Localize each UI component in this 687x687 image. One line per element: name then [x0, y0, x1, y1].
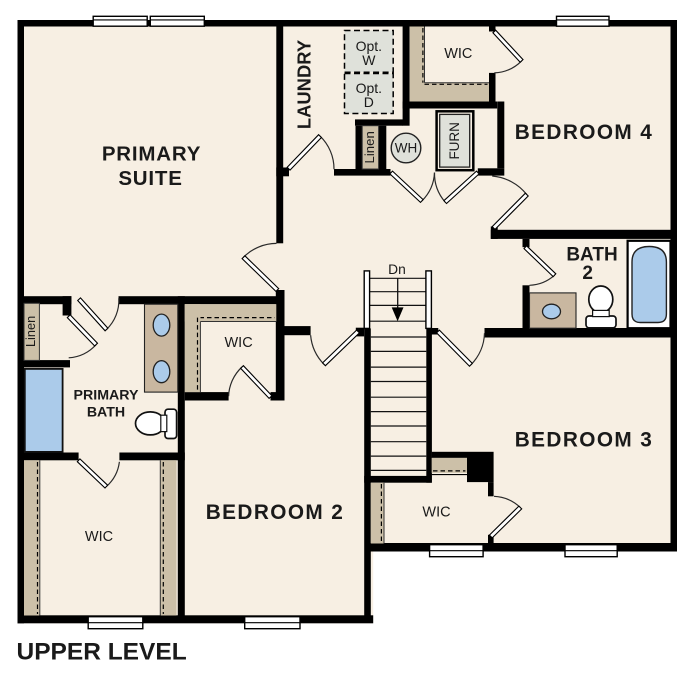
svg-text:PRIMARY: PRIMARY — [102, 142, 201, 165]
svg-text:D: D — [364, 94, 374, 110]
svg-text:BEDROOM 4: BEDROOM 4 — [515, 121, 654, 144]
svg-text:Linen: Linen — [362, 131, 377, 163]
svg-text:FURN: FURN — [447, 122, 462, 160]
svg-text:Linen: Linen — [23, 316, 38, 347]
svg-text:BATH: BATH — [87, 405, 125, 421]
svg-text:WIC: WIC — [85, 529, 113, 545]
svg-text:WIC: WIC — [422, 505, 450, 521]
svg-text:Dn: Dn — [388, 262, 406, 277]
svg-text:PRIMARY: PRIMARY — [74, 387, 139, 403]
svg-text:W: W — [362, 52, 376, 68]
svg-text:LAUNDRY: LAUNDRY — [294, 40, 315, 129]
svg-text:SUITE: SUITE — [118, 167, 182, 190]
svg-text:WIC: WIC — [225, 335, 253, 351]
svg-text:2: 2 — [582, 263, 593, 284]
svg-text:WIC: WIC — [444, 46, 472, 62]
svg-text:BEDROOM 3: BEDROOM 3 — [515, 429, 654, 452]
svg-text:WH: WH — [395, 141, 418, 156]
svg-text:UPPER LEVEL: UPPER LEVEL — [17, 639, 187, 666]
svg-text:BEDROOM 2: BEDROOM 2 — [206, 501, 345, 524]
